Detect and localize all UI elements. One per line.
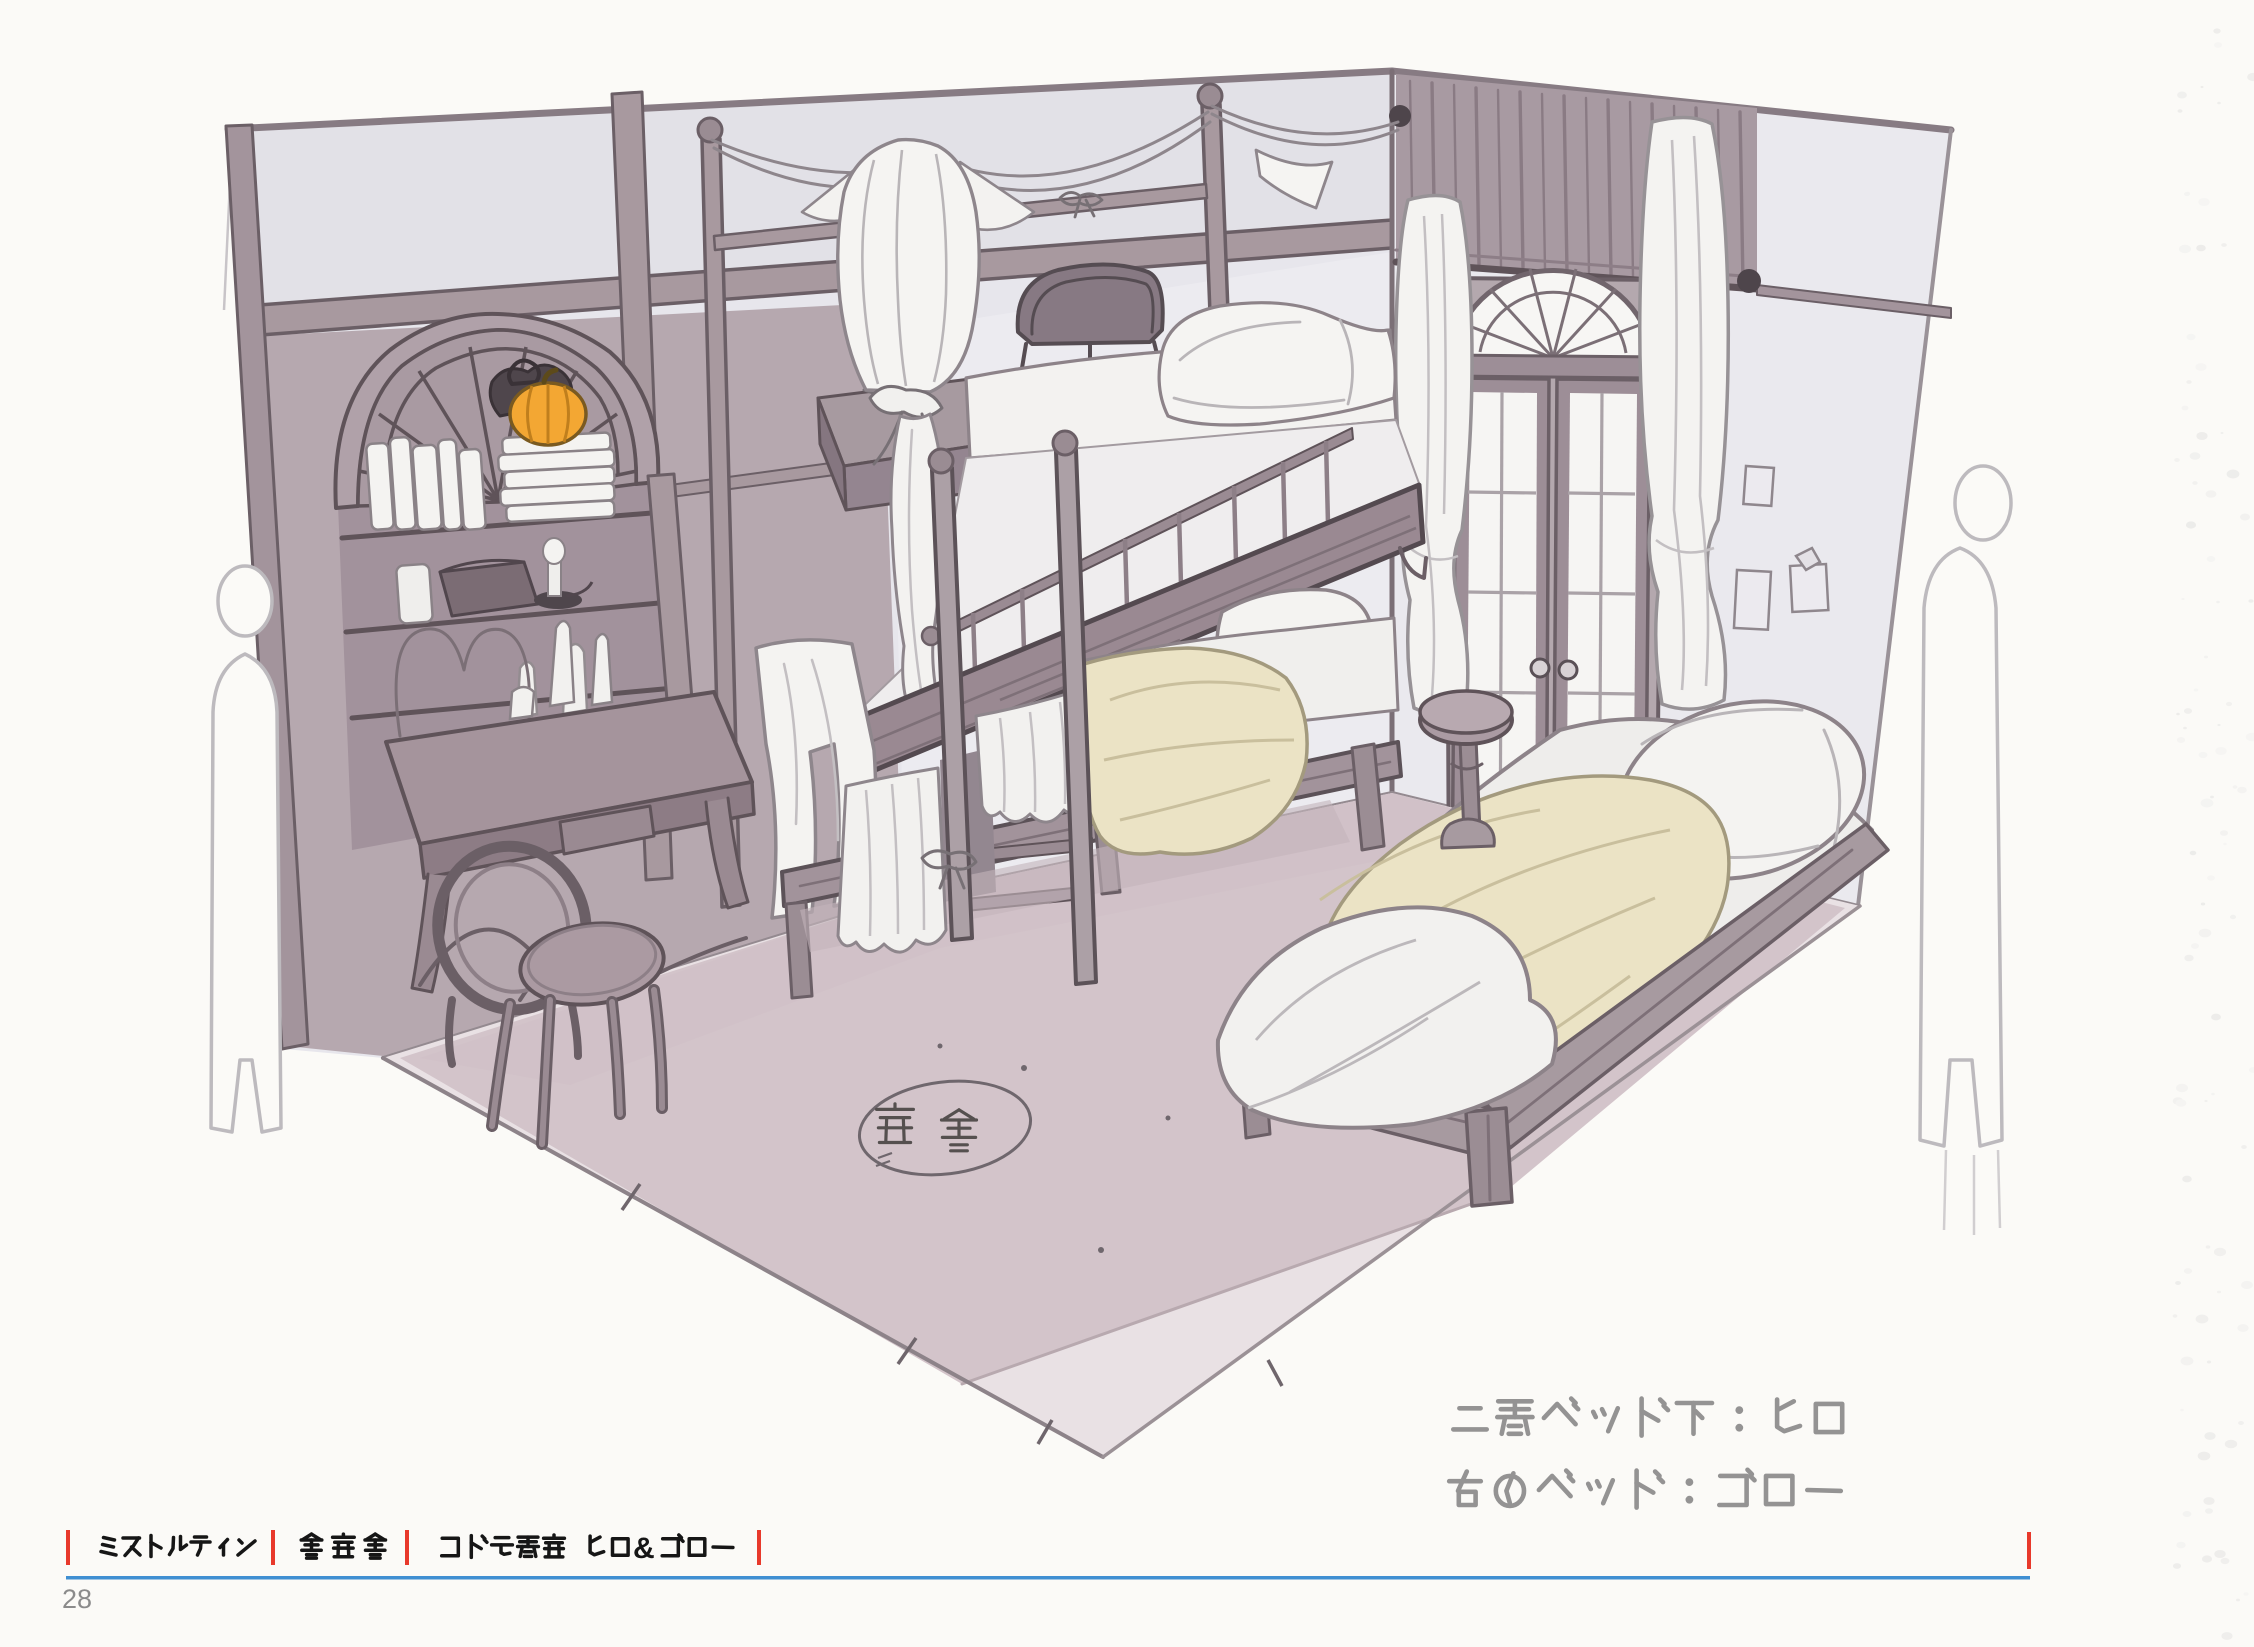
svg-text:28: 28	[62, 1584, 92, 1614]
svg-text:&: &	[633, 1532, 655, 1565]
